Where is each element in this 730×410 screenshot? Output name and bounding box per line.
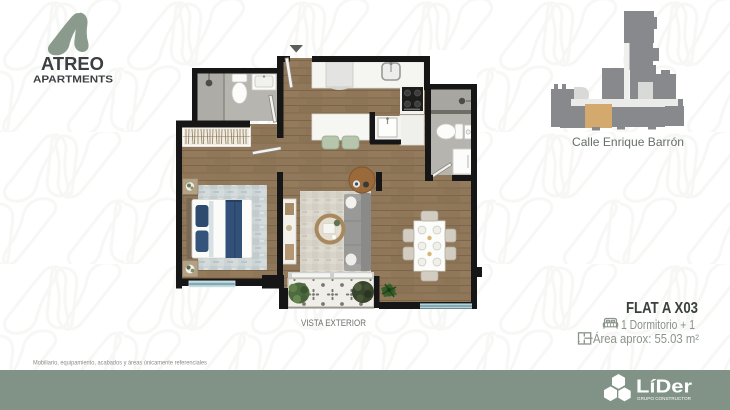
svg-text:LíDer: LíDer bbox=[636, 377, 692, 397]
svg-text:Mobiliario, equipamiento, acab: Mobiliario, equipamiento, acabados y áre… bbox=[33, 361, 207, 367]
svg-text:GRUPO CONSTRUCTOR: GRUPO CONSTRUCTOR bbox=[637, 396, 692, 401]
svg-text:APARTMENTS: APARTMENTS bbox=[33, 74, 113, 86]
svg-text:1 Dormitorio + 1: 1 Dormitorio + 1 bbox=[621, 318, 695, 332]
svg-text:ATREO: ATREO bbox=[41, 53, 104, 74]
svg-text:FLAT A X03: FLAT A X03 bbox=[626, 300, 698, 317]
svg-text:Calle Enrique Barrón: Calle Enrique Barrón bbox=[572, 135, 684, 149]
svg-text:Área aprox: 55.03 m²: Área aprox: 55.03 m² bbox=[593, 331, 699, 346]
svg-text:VISTA EXTERIOR: VISTA EXTERIOR bbox=[301, 318, 366, 329]
